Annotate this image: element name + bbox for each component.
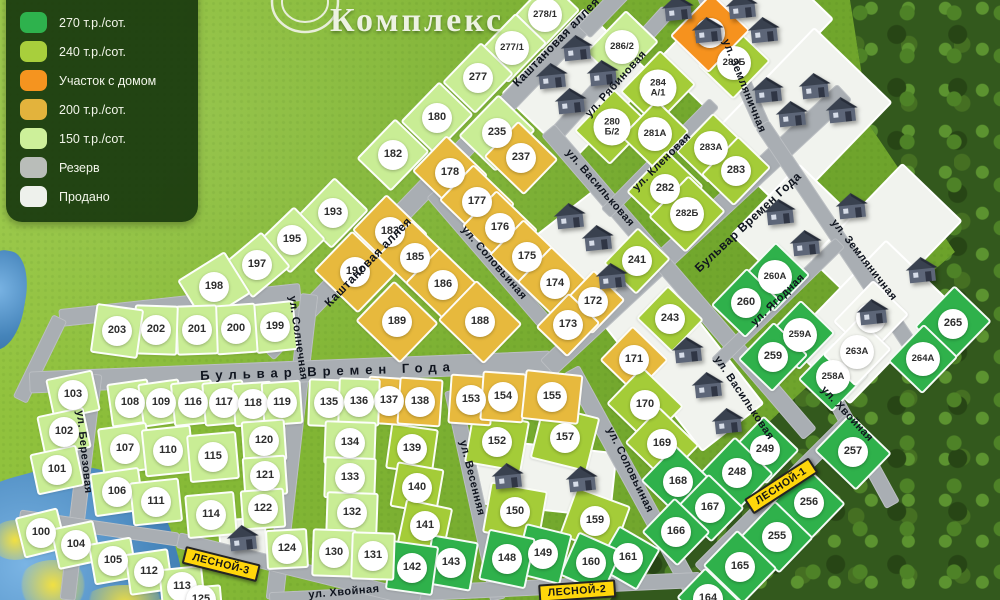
plot-label: 188	[465, 307, 495, 337]
plot-label: 119	[267, 388, 297, 418]
plot-label: 177	[462, 187, 492, 217]
plot-label: 282Б	[670, 197, 704, 231]
plot-label: 259А	[783, 318, 817, 352]
legend-item-sold: Продано	[20, 182, 198, 211]
plot-label: 202	[141, 315, 171, 345]
plot-label: 173	[553, 310, 583, 340]
legend-label: 150 т.р./сот.	[59, 132, 126, 146]
plot-label: 115	[198, 442, 228, 472]
plot-label: 149	[528, 539, 558, 569]
plot-label: 114	[196, 500, 226, 530]
house-icon	[854, 296, 891, 331]
plot-label: 104	[61, 530, 91, 560]
plot-label: 165	[725, 552, 755, 582]
plot-label: 137	[374, 386, 404, 416]
plot-label: 189	[382, 307, 412, 337]
plot-label: 235	[482, 118, 512, 148]
plot-label: 107	[110, 434, 140, 464]
plot-label: 157	[550, 423, 580, 453]
plot-label: 153	[456, 385, 486, 415]
plot-label: 101	[42, 455, 72, 485]
plot-label: 108	[115, 388, 145, 418]
plot-label: 122	[248, 494, 278, 524]
plot-label: 171	[619, 345, 649, 375]
plot-label: 110	[153, 436, 183, 466]
plot-label: 186	[428, 270, 458, 300]
plot-map: 278/1277/1286/22771801822351931951971981…	[0, 0, 1000, 600]
plot-label: 136	[344, 387, 374, 417]
plot-label: 161	[613, 543, 643, 573]
plot-label: 203	[102, 316, 132, 346]
plot-label: 199	[260, 312, 290, 342]
legend-swatch-150	[20, 128, 47, 149]
plot-label: 155	[537, 382, 567, 412]
plot-label: 148	[492, 544, 522, 574]
legend-item-240: 240 т.р./сот.	[20, 37, 198, 66]
plot-label: 248	[722, 458, 752, 488]
plot-label: 139	[397, 434, 427, 464]
legend-label: 270 т.р./сот.	[59, 16, 126, 30]
legend-item-200: 200 т.р./сот.	[20, 95, 198, 124]
legend-item-house: Участок с домом	[20, 66, 198, 95]
plot-label: 195	[277, 225, 307, 255]
plot-label: 176	[485, 213, 515, 243]
plot-label: 175	[512, 242, 542, 272]
plot-label: 243	[655, 304, 685, 334]
plot-label: 100	[26, 518, 56, 548]
house-icon	[563, 463, 600, 498]
plot-label: 105	[98, 546, 128, 576]
plot-label: 193	[318, 198, 348, 228]
plot-label: 259	[758, 342, 788, 372]
plot-label: 264А	[906, 342, 940, 376]
plot-label: 281А	[638, 117, 672, 151]
plot-label: 280 Б/2	[594, 109, 631, 146]
plot-label: 284 А/1	[640, 70, 677, 107]
house-icon	[552, 85, 589, 120]
plot-label: 135	[314, 388, 344, 418]
plot-label: 117	[209, 388, 239, 418]
house-icon	[787, 227, 824, 262]
house-icon	[224, 522, 261, 557]
plot-label: 150	[500, 497, 530, 527]
legend-item-150: 150 т.р./сот.	[20, 124, 198, 153]
legend-label: Участок с домом	[59, 74, 156, 88]
legend-swatch-200	[20, 99, 47, 120]
plot-label: 154	[488, 382, 518, 412]
plot-label: 277	[463, 63, 493, 93]
legend-label: Продано	[59, 190, 110, 204]
plot-label: 200	[221, 314, 251, 344]
house-icon	[489, 460, 526, 495]
plot-label: 143	[436, 548, 466, 578]
plot-label: 283	[721, 156, 751, 186]
plot-label: 131	[358, 541, 388, 571]
plot-label: 132	[337, 498, 367, 528]
legend-label: 240 т.р./сот.	[59, 45, 126, 59]
plot-label: 124	[272, 534, 302, 564]
house-icon	[823, 94, 860, 129]
plot-label: 133	[335, 463, 365, 493]
plot-label: 121	[250, 461, 280, 491]
plot-label: 169	[647, 429, 677, 459]
legend-label: 200 т.р./сот.	[59, 103, 126, 117]
plot-label: 168	[663, 467, 693, 497]
plot-label: 120	[249, 426, 279, 456]
plot-label: 112	[134, 557, 164, 587]
plot-label: 106	[102, 477, 132, 507]
plot-label: 138	[405, 387, 435, 417]
plot-label: 180	[422, 103, 452, 133]
house-icon	[745, 14, 782, 49]
legend-label: Резерв	[59, 161, 100, 175]
house-icon	[579, 222, 616, 257]
house-icon	[709, 405, 746, 440]
legend-item-reserve: Резерв	[20, 153, 198, 182]
plot-label: 109	[146, 388, 176, 418]
legend-swatch-reserve	[20, 157, 47, 178]
legend-item-270: 270 т.р./сот.	[20, 8, 198, 37]
plot-label: 174	[540, 269, 570, 299]
page-title: Комплекс	[330, 2, 504, 40]
plot-label: 152	[482, 427, 512, 457]
house-icon	[903, 254, 940, 289]
plot-label: 134	[335, 428, 365, 458]
plot-label: 118	[238, 389, 268, 419]
plot-label: 111	[141, 487, 171, 517]
plot-label: 167	[695, 493, 725, 523]
plot-label: 263А	[840, 335, 874, 369]
plot-label: 178	[435, 158, 465, 188]
plot-label: 182	[378, 140, 408, 170]
house-icon	[773, 98, 810, 133]
legend-swatch-house	[20, 70, 47, 91]
plot-label: 116	[178, 388, 208, 418]
plot-label: 130	[319, 538, 349, 568]
plot-label: 197	[242, 250, 272, 280]
legend-panel: 270 т.р./сот.240 т.р./сот.Участок с домо…	[6, 0, 198, 222]
plot-label: 198	[199, 272, 229, 302]
plot-label: 141	[410, 511, 440, 541]
plot-label: 185	[400, 243, 430, 273]
legend-swatch-270	[20, 12, 47, 33]
plot-label: 140	[402, 473, 432, 503]
plot-label: 142	[397, 553, 427, 583]
plot-label: 255	[762, 522, 792, 552]
plot-label: 283А	[694, 131, 728, 165]
plot-label: 160	[576, 548, 606, 578]
plot-label: 265	[938, 309, 968, 339]
house-icon	[669, 334, 706, 369]
plot-label: 166	[661, 517, 691, 547]
plot-label: 159	[580, 506, 610, 536]
plot-label: 201	[182, 315, 212, 345]
plot-label: 256	[794, 488, 824, 518]
plot-label: 282	[650, 174, 680, 204]
plot-label: 103	[58, 380, 88, 410]
plot-label: 237	[506, 143, 536, 173]
plot-label: 170	[630, 390, 660, 420]
house-icon	[593, 260, 630, 295]
legend-swatch-sold	[20, 186, 47, 207]
legend-swatch-240	[20, 41, 47, 62]
